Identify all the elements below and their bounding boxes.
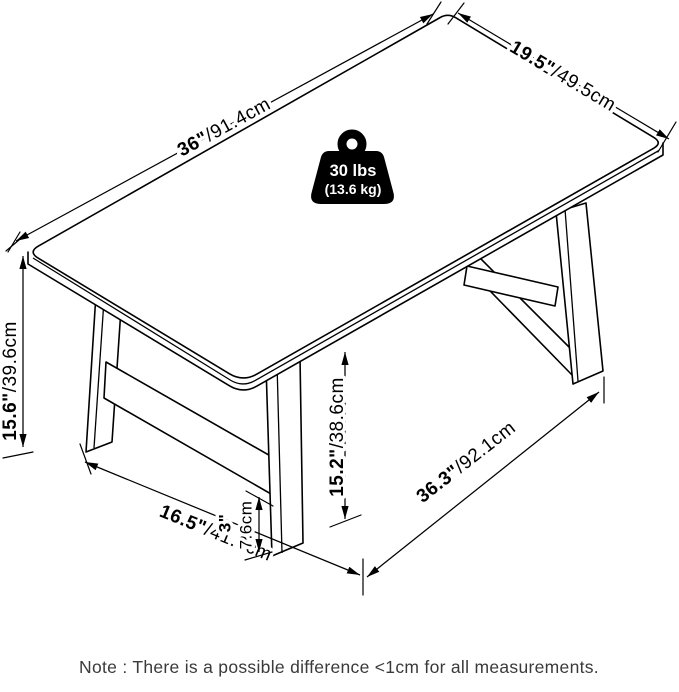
dim-cm: /92.1cm <box>451 417 520 477</box>
dimension-under-clearance: 15.2"/38.6cm <box>327 352 362 527</box>
dim-inches: 16.5" <box>157 501 210 539</box>
screenshot-root: 36"/91.4cm 19.5"/49.5cm 15.6"/39.6cm 16.… <box>0 0 679 692</box>
dimension-diagram: 36"/91.4cm 19.5"/49.5cm 15.6"/39.6cm 16.… <box>0 0 679 692</box>
dim-under-clearance-label: 15.2"/38.6cm <box>327 377 348 497</box>
dimension-height: 15.6"/39.6cm <box>0 240 33 458</box>
dim-clearance-cm: 7.6cm <box>237 501 256 550</box>
dimension-leg-length-span: 36.3"/92.1cm <box>367 377 604 577</box>
note-text: Note : There is a possible difference <1… <box>79 657 599 677</box>
dim-clearance-inches: 3" <box>216 514 235 533</box>
left-front-leg <box>266 357 303 556</box>
dim-inches: 15.6" <box>0 392 21 441</box>
weight-lbs-label: 30 lbs <box>330 162 377 180</box>
weight-kg-label: (13.6 kg) <box>325 181 382 197</box>
dim-cm: /39.6cm <box>0 321 21 392</box>
dim-inches: 15.2" <box>327 448 348 497</box>
dim-cm: /38.6cm <box>327 377 348 448</box>
dim-leg-length-label: 36.3"/92.1cm <box>412 417 519 507</box>
dim-height-label: 15.6"/39.6cm <box>0 321 21 441</box>
